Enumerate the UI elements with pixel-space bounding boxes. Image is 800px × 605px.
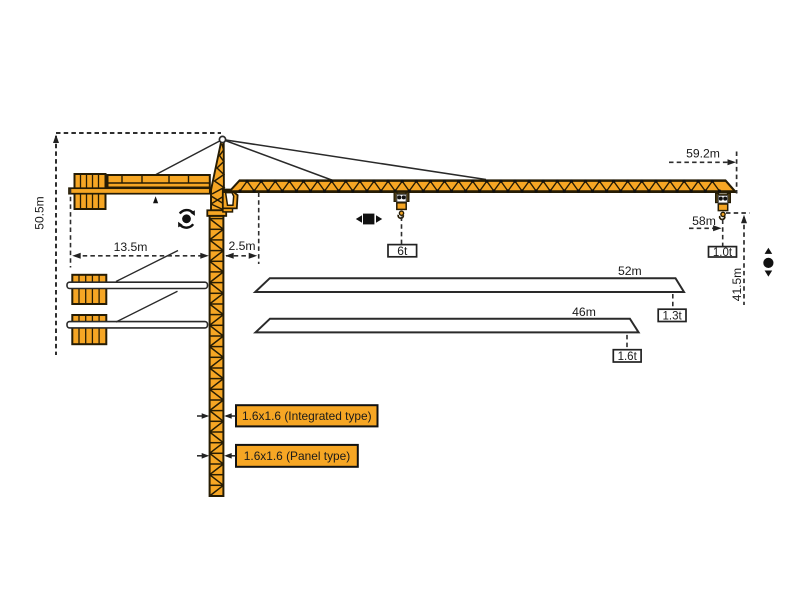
svg-text:52m: 52m [618, 264, 642, 278]
svg-text:1.0t: 1.0t [713, 247, 733, 259]
svg-text:46m: 46m [572, 305, 596, 319]
svg-text:58m: 58m [692, 214, 716, 228]
svg-text:2.5m: 2.5m [228, 239, 255, 253]
svg-text:6t: 6t [397, 244, 408, 258]
svg-text:59.2m: 59.2m [686, 147, 720, 161]
svg-text:41.5m: 41.5m [730, 268, 744, 301]
svg-text:1.3t: 1.3t [663, 310, 683, 322]
svg-text:13.5m: 13.5m [114, 240, 148, 254]
svg-text:1.6x1.6 (Panel type): 1.6x1.6 (Panel type) [244, 449, 350, 463]
svg-text:1.6x1.6 (Integrated type): 1.6x1.6 (Integrated type) [242, 409, 372, 423]
svg-text:1.6t: 1.6t [618, 351, 638, 363]
svg-text:50.5m: 50.5m [33, 196, 47, 229]
